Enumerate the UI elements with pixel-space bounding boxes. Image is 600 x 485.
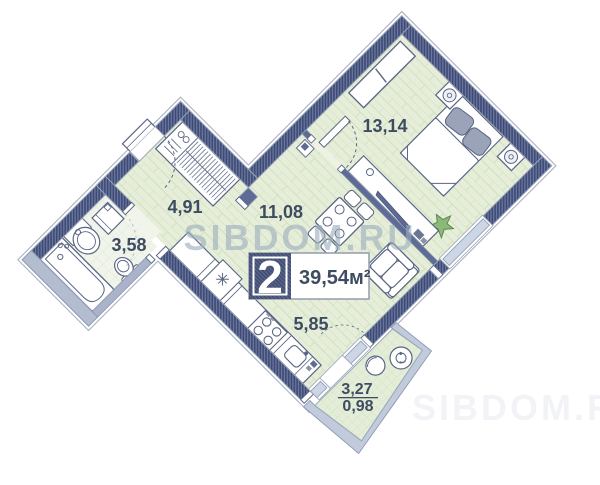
svg-text:SIBDOM.RU: SIBDOM.RU [184,217,417,258]
svg-text:2: 2 [257,251,283,303]
svg-text:5,85: 5,85 [293,314,328,334]
svg-text:4,91: 4,91 [167,197,202,217]
svg-text:11,08: 11,08 [259,202,303,222]
svg-text:3,58: 3,58 [111,235,146,255]
svg-text:0,98: 0,98 [342,398,373,415]
svg-text:13,14: 13,14 [362,116,407,136]
svg-text:SIBDOM.RU: SIBDOM.RU [412,387,600,428]
svg-text:39,54м²: 39,54м² [299,267,371,289]
svg-text:3,27: 3,27 [341,381,372,398]
